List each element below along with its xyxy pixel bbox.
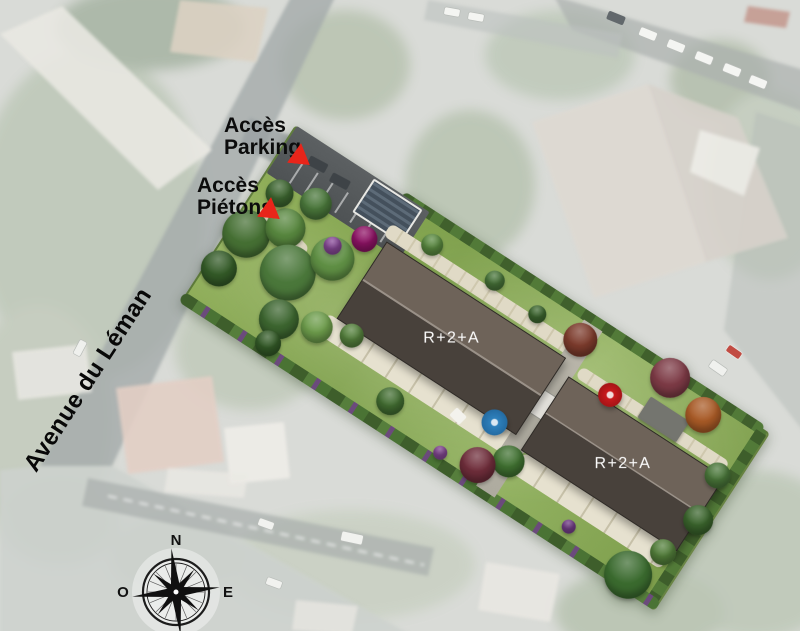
- pedestrian-access-line1: Accès: [197, 175, 273, 197]
- parking-access-line2: Parking: [224, 137, 301, 159]
- tree-icon: [700, 457, 736, 493]
- parking-access-line1: Accès: [224, 115, 301, 137]
- compass-rose-icon: N O E: [111, 527, 241, 631]
- tree-icon: [417, 230, 447, 260]
- site-plan: R+2+A R+2+A Accès Parking Accès Piétons …: [0, 0, 800, 631]
- tree-icon: [371, 382, 410, 421]
- compass-east-label: E: [223, 584, 233, 601]
- parking-access-label: Accès Parking: [224, 115, 301, 160]
- tree-icon: [557, 316, 604, 363]
- compass-north-label: N: [171, 532, 182, 549]
- compass-west-label: O: [117, 584, 129, 601]
- tree-icon: [335, 319, 368, 352]
- tree-icon: [431, 443, 450, 462]
- tree-icon: [525, 302, 550, 327]
- tree-icon: [481, 267, 509, 295]
- tree-icon: [559, 517, 578, 536]
- tree-icon: [295, 305, 339, 349]
- tree-icon: [453, 440, 503, 490]
